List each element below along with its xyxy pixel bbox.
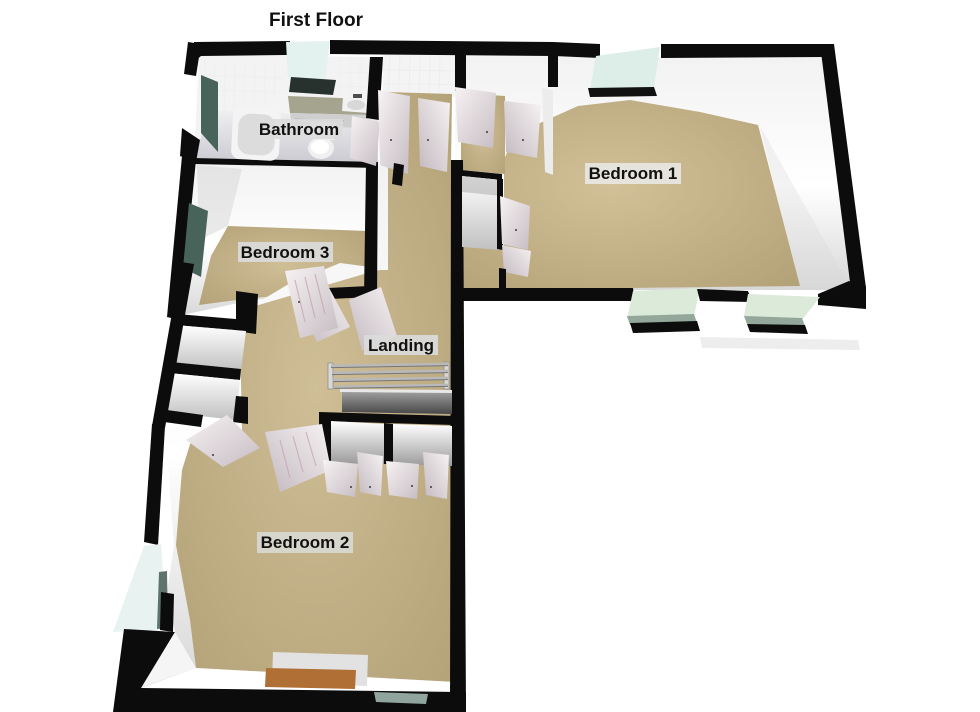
svg-text:First Floor: First Floor	[269, 10, 364, 31]
svg-text:Bathroom: Bathroom	[259, 120, 339, 139]
svg-text:Bedroom 1: Bedroom 1	[589, 164, 678, 183]
svg-text:Bedroom 3: Bedroom 3	[241, 243, 330, 262]
svg-text:Bedroom 2: Bedroom 2	[261, 533, 350, 552]
svg-text:Landing: Landing	[368, 336, 434, 355]
